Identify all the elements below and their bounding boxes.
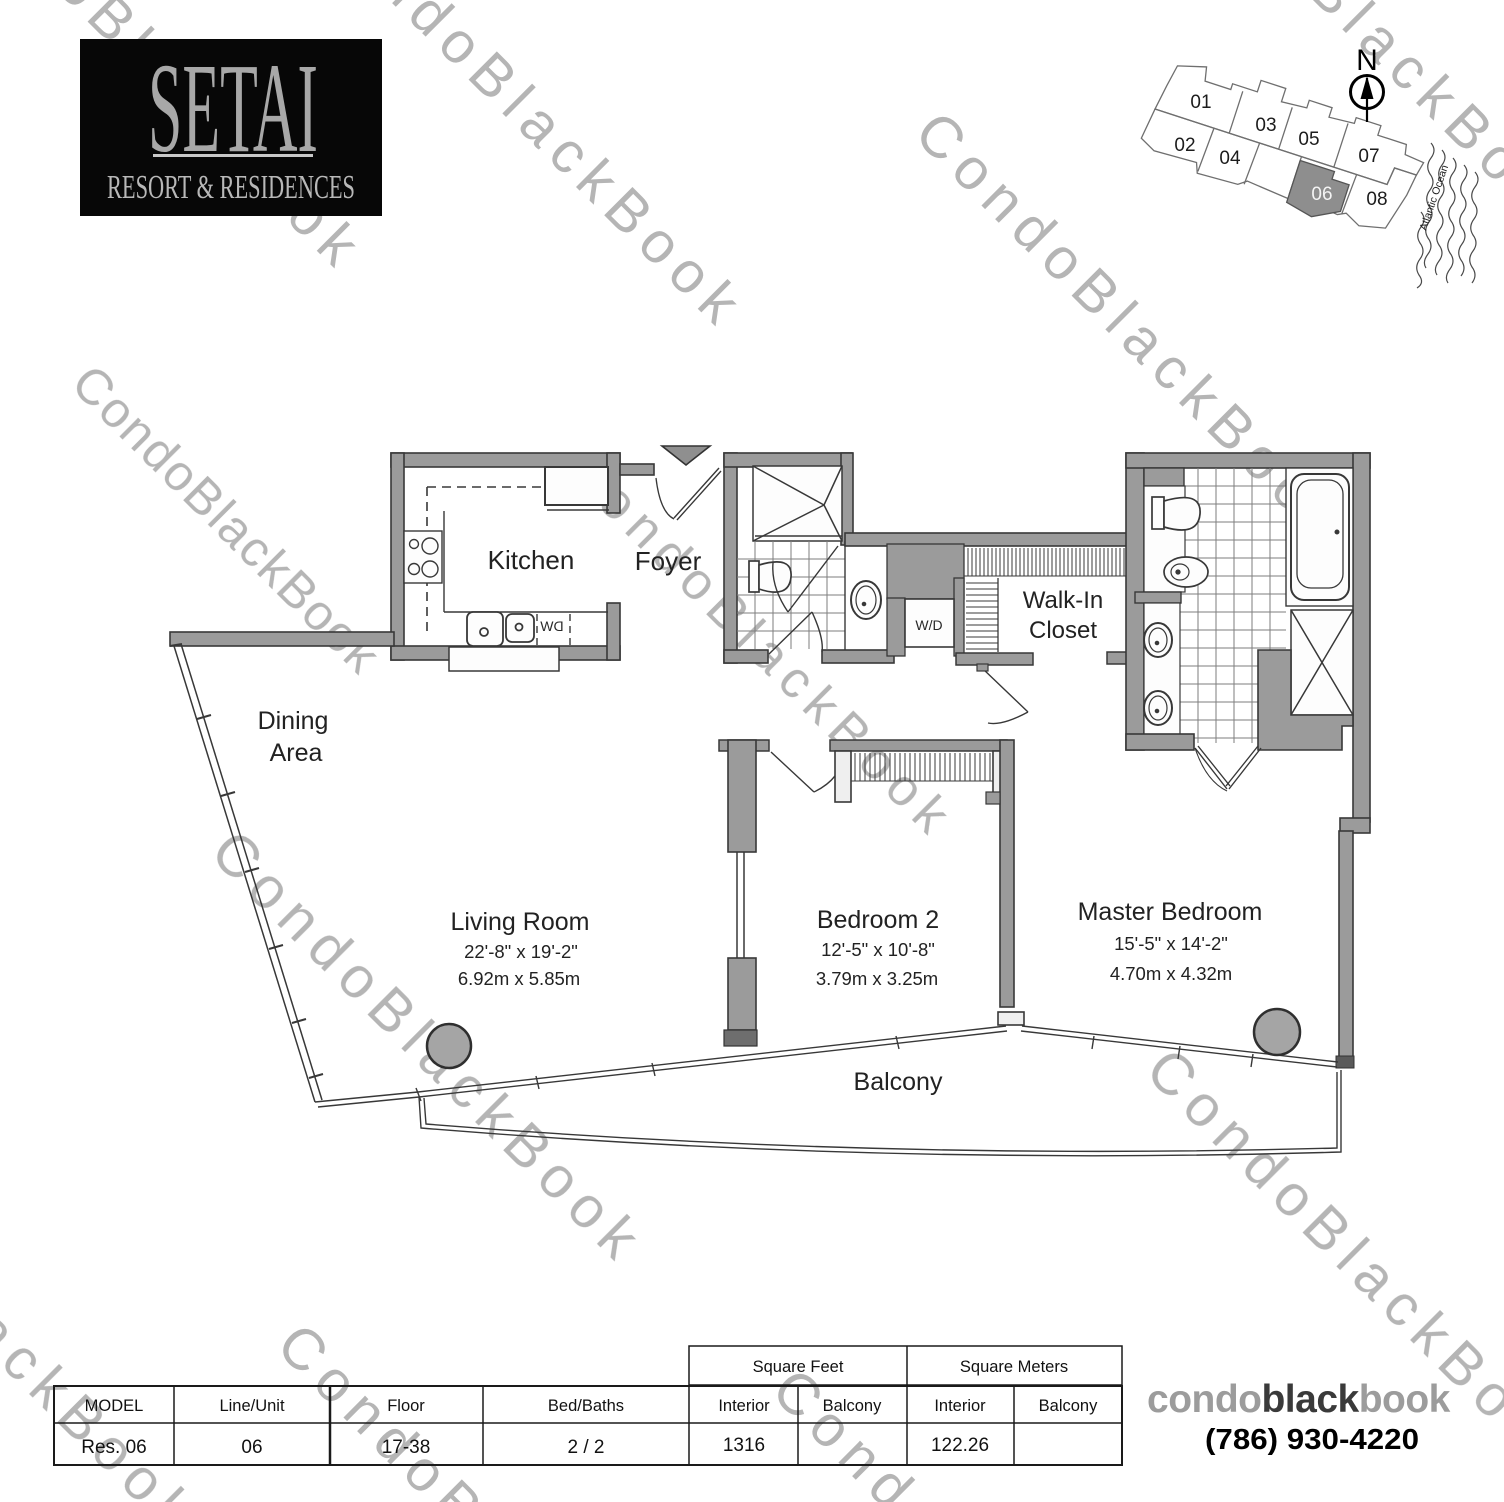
svg-text:Square Meters: Square Meters bbox=[960, 1358, 1068, 1376]
svg-text:Res. 06: Res. 06 bbox=[81, 1437, 146, 1458]
svg-text:Balcony: Balcony bbox=[854, 1068, 943, 1096]
svg-text:Living Room: Living Room bbox=[451, 908, 590, 936]
svg-text:06: 06 bbox=[1311, 184, 1332, 205]
svg-text:MODEL: MODEL bbox=[85, 1397, 144, 1415]
svg-text:Balcony: Balcony bbox=[1039, 1397, 1098, 1415]
svg-text:Bed/Baths: Bed/Baths bbox=[548, 1397, 624, 1415]
svg-text:(786) 930-4220: (786) 930-4220 bbox=[1205, 1424, 1419, 1456]
svg-text:condoblackbook: condoblackbook bbox=[1147, 1378, 1451, 1421]
svg-text:Bedroom 2: Bedroom 2 bbox=[817, 906, 939, 934]
svg-text:05: 05 bbox=[1298, 129, 1319, 150]
svg-text:Foyer: Foyer bbox=[635, 546, 702, 576]
svg-text:6.92m x 5.85m: 6.92m x 5.85m bbox=[458, 968, 580, 989]
svg-text:Kitchen: Kitchen bbox=[488, 545, 575, 575]
svg-text:12'-5" x 10'-8": 12'-5" x 10'-8" bbox=[821, 939, 935, 960]
svg-text:Balcony: Balcony bbox=[823, 1397, 882, 1415]
svg-text:Line/Unit: Line/Unit bbox=[219, 1397, 285, 1415]
svg-text:N: N bbox=[1356, 44, 1378, 77]
svg-text:122.26: 122.26 bbox=[931, 1435, 989, 1456]
svg-text:4.70m x 4.32m: 4.70m x 4.32m bbox=[1110, 963, 1232, 984]
svg-text:22'-8" x 19'-2": 22'-8" x 19'-2" bbox=[464, 941, 578, 962]
svg-text:CondoBlackBook: CondoBlackBook bbox=[265, 1311, 725, 1502]
svg-text:2 / 2: 2 / 2 bbox=[568, 1437, 605, 1458]
svg-text:RESORT & RESIDENCES: RESORT & RESIDENCES bbox=[107, 169, 355, 206]
svg-text:1316: 1316 bbox=[723, 1435, 765, 1456]
svg-text:CondoBlackBook: CondoBlackBook bbox=[1140, 0, 1504, 259]
svg-text:01: 01 bbox=[1190, 92, 1211, 113]
svg-text:02: 02 bbox=[1174, 135, 1195, 156]
svg-text:06: 06 bbox=[241, 1437, 262, 1458]
svg-text:Walk-In: Walk-In bbox=[1023, 587, 1103, 614]
svg-text:17-38: 17-38 bbox=[382, 1437, 431, 1458]
svg-text:Interior: Interior bbox=[718, 1397, 770, 1415]
svg-text:Square Feet: Square Feet bbox=[753, 1358, 844, 1376]
svg-text:15'-5" x 14'-2": 15'-5" x 14'-2" bbox=[1114, 933, 1228, 954]
svg-text:Dining: Dining bbox=[258, 707, 329, 735]
svg-text:3.79m x 3.25m: 3.79m x 3.25m bbox=[816, 968, 938, 989]
svg-text:04: 04 bbox=[1219, 148, 1241, 169]
svg-text:Interior: Interior bbox=[934, 1397, 986, 1415]
svg-text:Master Bedroom: Master Bedroom bbox=[1078, 898, 1263, 926]
svg-text:Atlantic Ocean: Atlantic Ocean bbox=[1417, 163, 1451, 232]
svg-text:08: 08 bbox=[1366, 189, 1387, 210]
svg-text:W/D: W/D bbox=[915, 617, 942, 633]
svg-text:DW: DW bbox=[540, 618, 564, 634]
svg-text:Floor: Floor bbox=[387, 1397, 425, 1415]
svg-text:03: 03 bbox=[1255, 115, 1276, 136]
svg-text:Area: Area bbox=[270, 739, 323, 767]
svg-text:SETAI: SETAI bbox=[148, 37, 318, 179]
svg-text:Closet: Closet bbox=[1029, 617, 1097, 644]
svg-text:07: 07 bbox=[1358, 146, 1379, 167]
